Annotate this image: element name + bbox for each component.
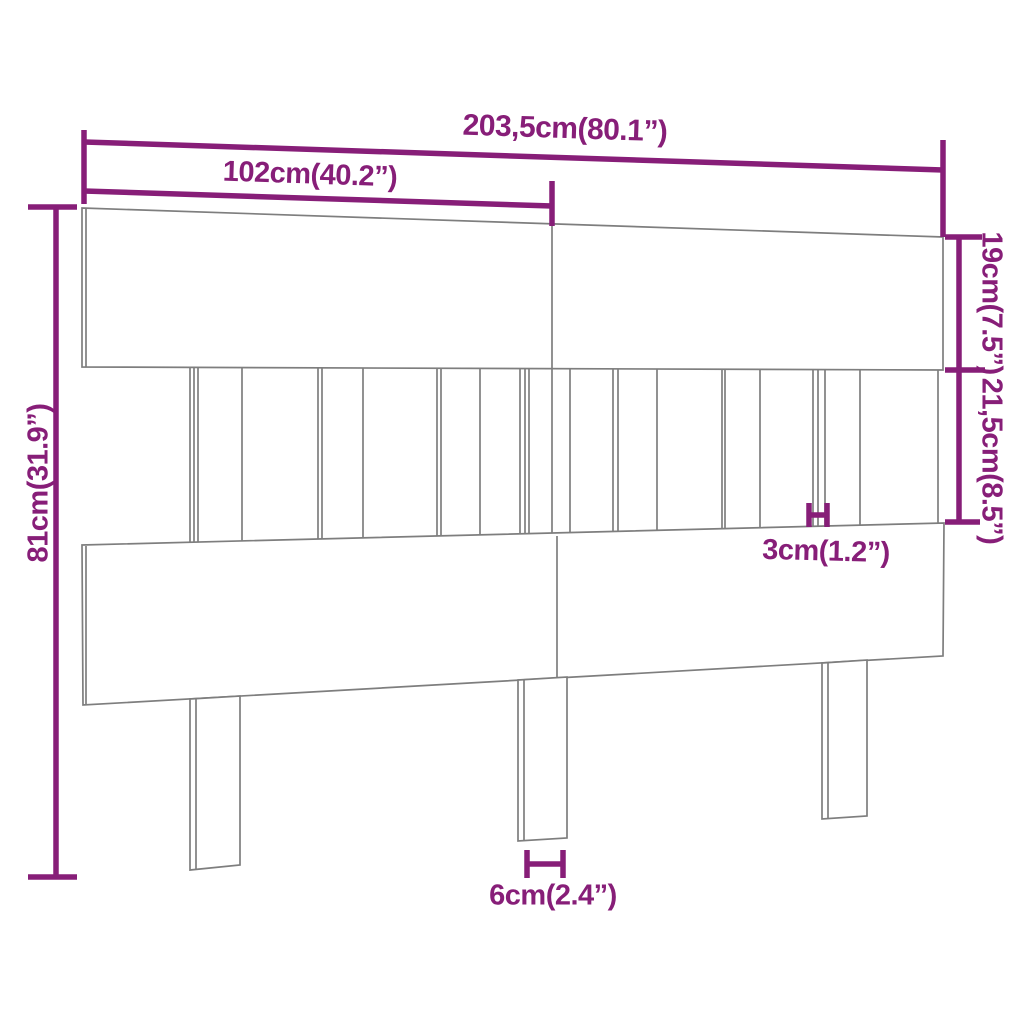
headboard-leg-center bbox=[518, 677, 567, 841]
headboard-dimension-diagram: 203,5cm(80.1”) 102cm(40.2”) 19cm(7.5”) 2… bbox=[0, 0, 1024, 1024]
dim-total-width-line bbox=[84, 142, 943, 170]
dimension-label-half-width: 102cm(40.2”) bbox=[222, 156, 398, 195]
dimension-label-total-width: 203,5cm(80.1”) bbox=[462, 109, 668, 150]
headboard-line-drawing bbox=[0, 0, 1024, 1024]
dimension-label-top-board-height: 19cm(7.5”) bbox=[975, 231, 1008, 374]
headboard-leg-left bbox=[190, 696, 240, 870]
dimension-label-leg-width: 6cm(2.4”) bbox=[489, 880, 617, 913]
dim-half-width-line bbox=[84, 191, 552, 206]
dimension-label-slat-gap: 3cm(1.2”) bbox=[762, 534, 890, 570]
dimension-label-total-height: 81cm(31.9”) bbox=[23, 404, 56, 563]
dimension-label-middle-section-height: 21,5cm(8.5”) bbox=[975, 378, 1008, 545]
headboard-top-board bbox=[82, 208, 943, 370]
